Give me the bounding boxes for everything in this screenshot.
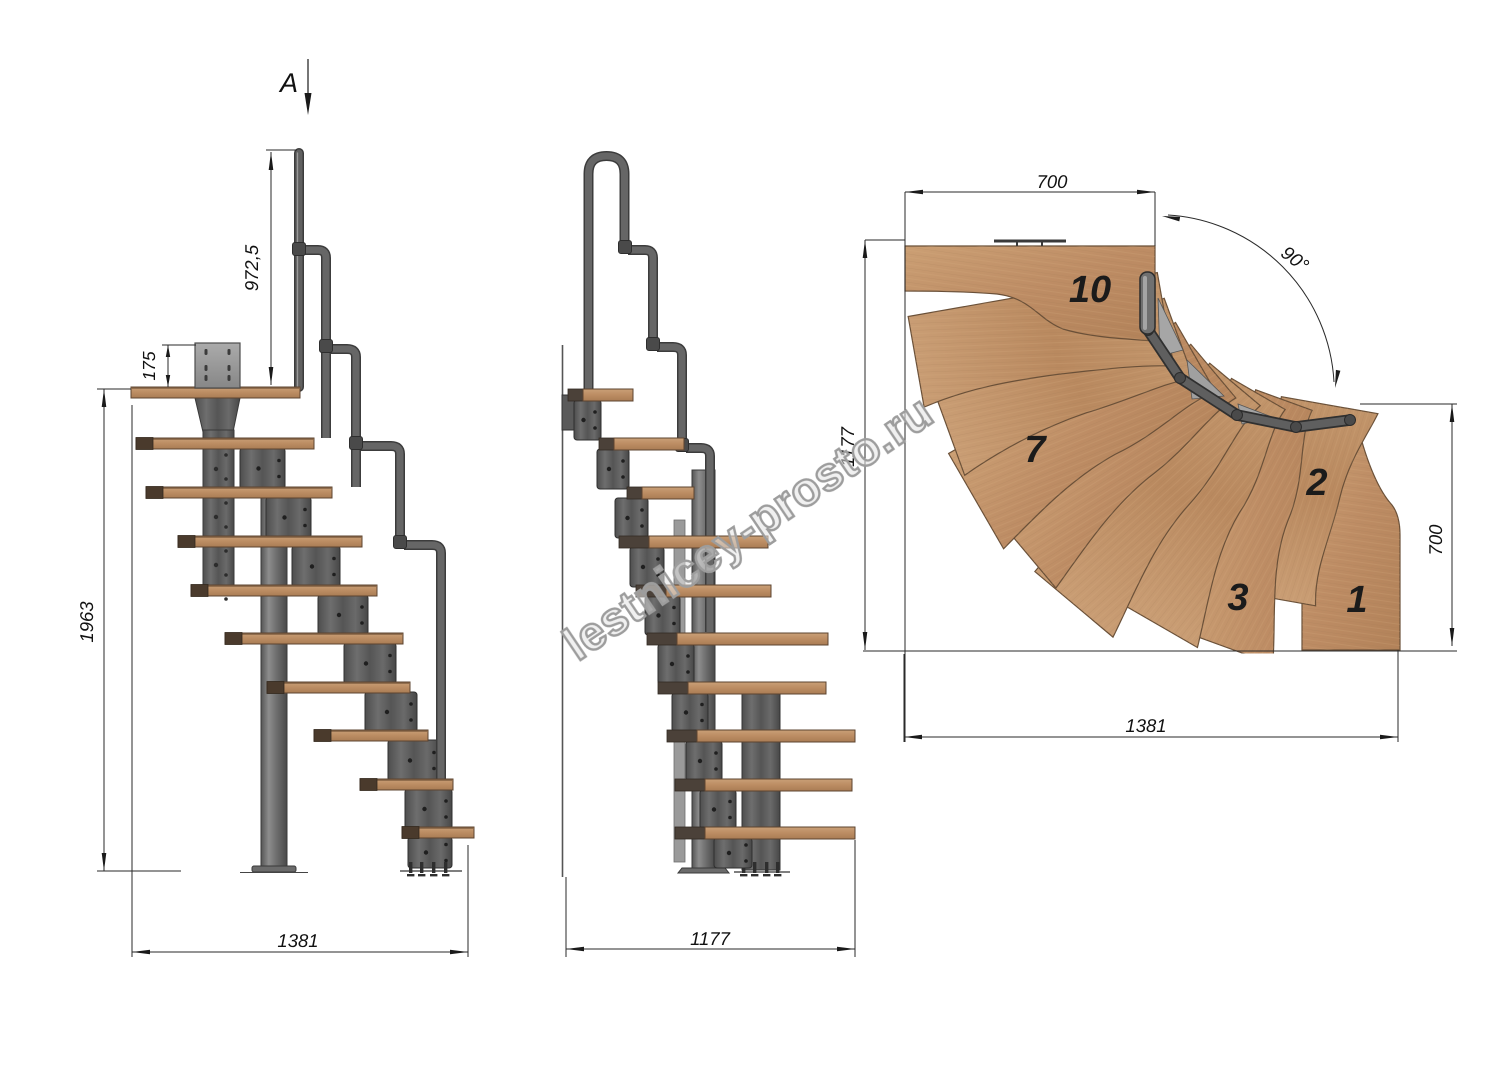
svg-text:972,5: 972,5 [241,244,262,291]
svg-text:700: 700 [1037,171,1069,192]
svg-text:7: 7 [1024,429,1047,471]
svg-text:2: 2 [1305,462,1327,504]
svg-text:1963: 1963 [76,601,97,643]
svg-text:175: 175 [139,351,159,380]
svg-text:A: A [278,68,298,98]
svg-text:1: 1 [1346,579,1367,621]
svg-text:1381: 1381 [277,930,318,951]
svg-text:1381: 1381 [1125,715,1166,736]
svg-text:3: 3 [1227,577,1248,619]
svg-text:1177: 1177 [690,928,730,949]
svg-text:10: 10 [1069,269,1111,311]
svg-text:700: 700 [1425,524,1446,556]
